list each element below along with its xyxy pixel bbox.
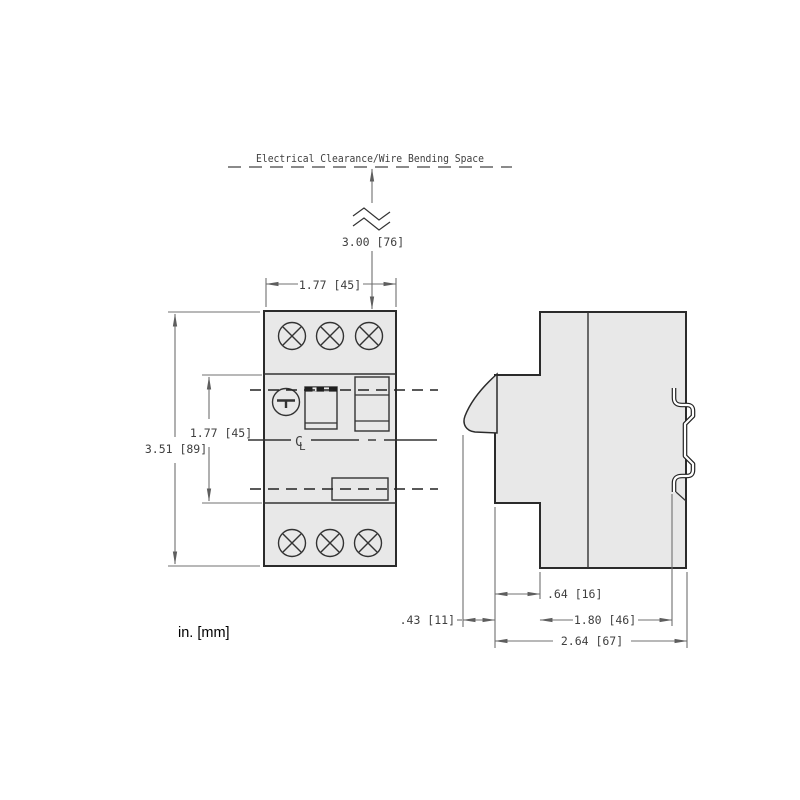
step-depth-dim-text: .64 [16] xyxy=(547,587,602,601)
handle-height-dim-text: 1.77 [45] xyxy=(190,426,252,440)
side-view xyxy=(464,312,693,568)
units-note: in. [mm] xyxy=(178,625,230,641)
drawing-canvas: Electrical Clearance/Wire Bending Space … xyxy=(0,0,800,800)
side-knob-bump xyxy=(464,374,497,433)
break-symbol-lower xyxy=(353,218,390,230)
dimensional-drawing: Electrical Clearance/Wire Bending Space … xyxy=(0,0,800,800)
break-symbol-upper xyxy=(353,208,390,220)
front-height-dim-text: 3.51 [89] xyxy=(145,442,207,456)
clearance-label: Electrical Clearance/Wire Bending Space xyxy=(256,152,484,165)
side-body xyxy=(495,312,686,568)
clearance-annotation: Electrical Clearance/Wire Bending Space … xyxy=(228,152,512,309)
total-depth-dim-text: 2.64 [67] xyxy=(561,634,623,648)
front-width-dim-text: 1.77 [45] xyxy=(299,278,361,292)
knob-protrusion-dim-text: .43 [11] xyxy=(400,613,455,627)
svg-text:L: L xyxy=(299,440,306,453)
front-view: C L xyxy=(248,311,438,566)
rail-to-front-dim-text: 1.80 [46] xyxy=(574,613,636,627)
clearance-dim-text: 3.00 [76] xyxy=(342,235,404,249)
